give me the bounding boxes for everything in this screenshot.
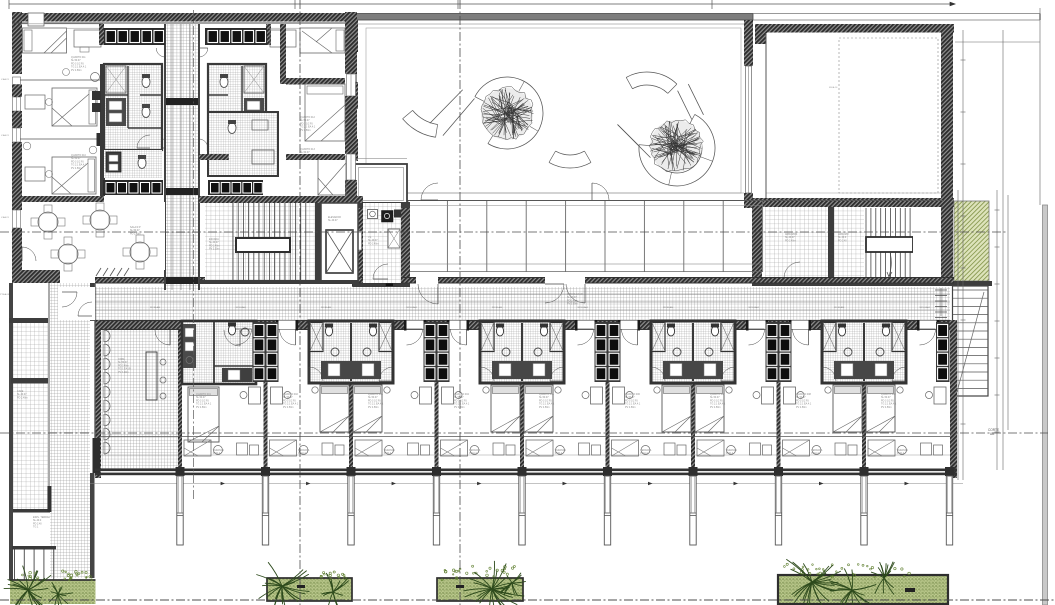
- svg-text:WC.ELA04: WC.ELA04: [492, 306, 503, 309]
- svg-text:PV 3.00m: PV 3.00m: [567, 303, 578, 306]
- svg-text:PT.ELA: PT.ELA: [469, 452, 477, 455]
- svg-text:VERANDA: VERANDA: [811, 449, 823, 452]
- svg-text:VERANDA: VERANDA: [213, 449, 225, 452]
- svg-text:WC.ELA04: WC.ELA04: [150, 306, 161, 309]
- svg-text:WC.ELA04: WC.ELA04: [663, 306, 674, 309]
- svg-text:PV 4.00m: PV 4.00m: [118, 371, 129, 374]
- svg-text:PD 2.40m: PD 2.40m: [368, 242, 379, 245]
- svg-text:V.EA.21: V.EA.21: [1, 78, 10, 81]
- svg-text:VERANDA: VERANDA: [555, 449, 567, 452]
- svg-text:VERANDA: VERANDA: [726, 449, 738, 452]
- svg-text:PV 3.00m: PV 3.00m: [209, 248, 220, 251]
- svg-text:PT.EA.05: PT.EA.05: [0, 293, 10, 296]
- svg-text:V.EA.21: V.EA.21: [1, 216, 10, 219]
- svg-text:PV 4.50m: PV 4.50m: [368, 406, 379, 409]
- svg-text:PT.ELA: PT.ELA: [384, 452, 392, 455]
- svg-text:WC.ELA04: WC.ELA04: [834, 306, 845, 309]
- svg-text:PV 4.50m: PV 4.50m: [71, 69, 82, 72]
- svg-text:WC.ELA04: WC.ELA04: [578, 306, 589, 309]
- svg-text:VERANDA: VERANDA: [384, 449, 396, 452]
- svg-text:TG 1: TG 1: [33, 526, 39, 529]
- svg-text:PV 4.50m: PV 4.50m: [539, 406, 550, 409]
- svg-text:WC.ELA04: WC.ELA04: [749, 306, 760, 309]
- svg-text:PT.ELA: PT.ELA: [555, 452, 563, 455]
- svg-text:PT.ELA: PT.ELA: [897, 452, 905, 455]
- svg-text:PV 4.50m: PV 4.50m: [796, 406, 807, 409]
- svg-text:PT.ELA: PT.ELA: [811, 452, 819, 455]
- svg-text:PV 4.50m: PV 4.50m: [454, 406, 465, 409]
- svg-text:PV 4.50m: PV 4.50m: [196, 406, 207, 409]
- svg-text:PV 4.50m: PV 4.50m: [283, 406, 294, 409]
- svg-text:WC.ELA04: WC.ELA04: [321, 306, 332, 309]
- svg-text:PV 4.50m: PV 4.50m: [625, 406, 636, 409]
- svg-text:PV 4.50m: PV 4.50m: [710, 406, 721, 409]
- svg-text:PT.ELA: PT.ELA: [213, 452, 221, 455]
- svg-text:VERANDA: VERANDA: [897, 449, 909, 452]
- svg-text:V.EA.21: V.EA.21: [1, 134, 10, 137]
- svg-text:PD 2.40m: PD 2.40m: [785, 239, 796, 242]
- svg-text:SL.40.07: SL.40.07: [328, 219, 338, 222]
- svg-text:WC.ELA04: WC.ELA04: [407, 306, 418, 309]
- svg-text:PT.ELA: PT.ELA: [298, 452, 306, 455]
- svg-text:VERANDA: VERANDA: [469, 449, 481, 452]
- svg-text:PV 4.50m: PV 4.50m: [71, 167, 82, 170]
- svg-text:WC.ELA04: WC.ELA04: [236, 306, 247, 309]
- svg-text:VERANDA: VERANDA: [640, 449, 652, 452]
- svg-text:WC.ELA04: WC.ELA04: [920, 306, 931, 309]
- svg-text:M.EA.16: M.EA.16: [829, 86, 838, 89]
- svg-text:PT.ELA: PT.ELA: [726, 452, 734, 455]
- svg-text:PT.ELA: PT.ELA: [640, 452, 648, 455]
- svg-text:AA': AA': [990, 432, 995, 436]
- svg-text:PD 2.40m: PD 2.40m: [17, 396, 28, 399]
- svg-text:PV 4.50m: PV 4.50m: [881, 406, 892, 409]
- svg-text:PD 2.40m: PD 2.40m: [130, 232, 141, 235]
- svg-text:PD 2.40: PD 2.40: [838, 239, 847, 242]
